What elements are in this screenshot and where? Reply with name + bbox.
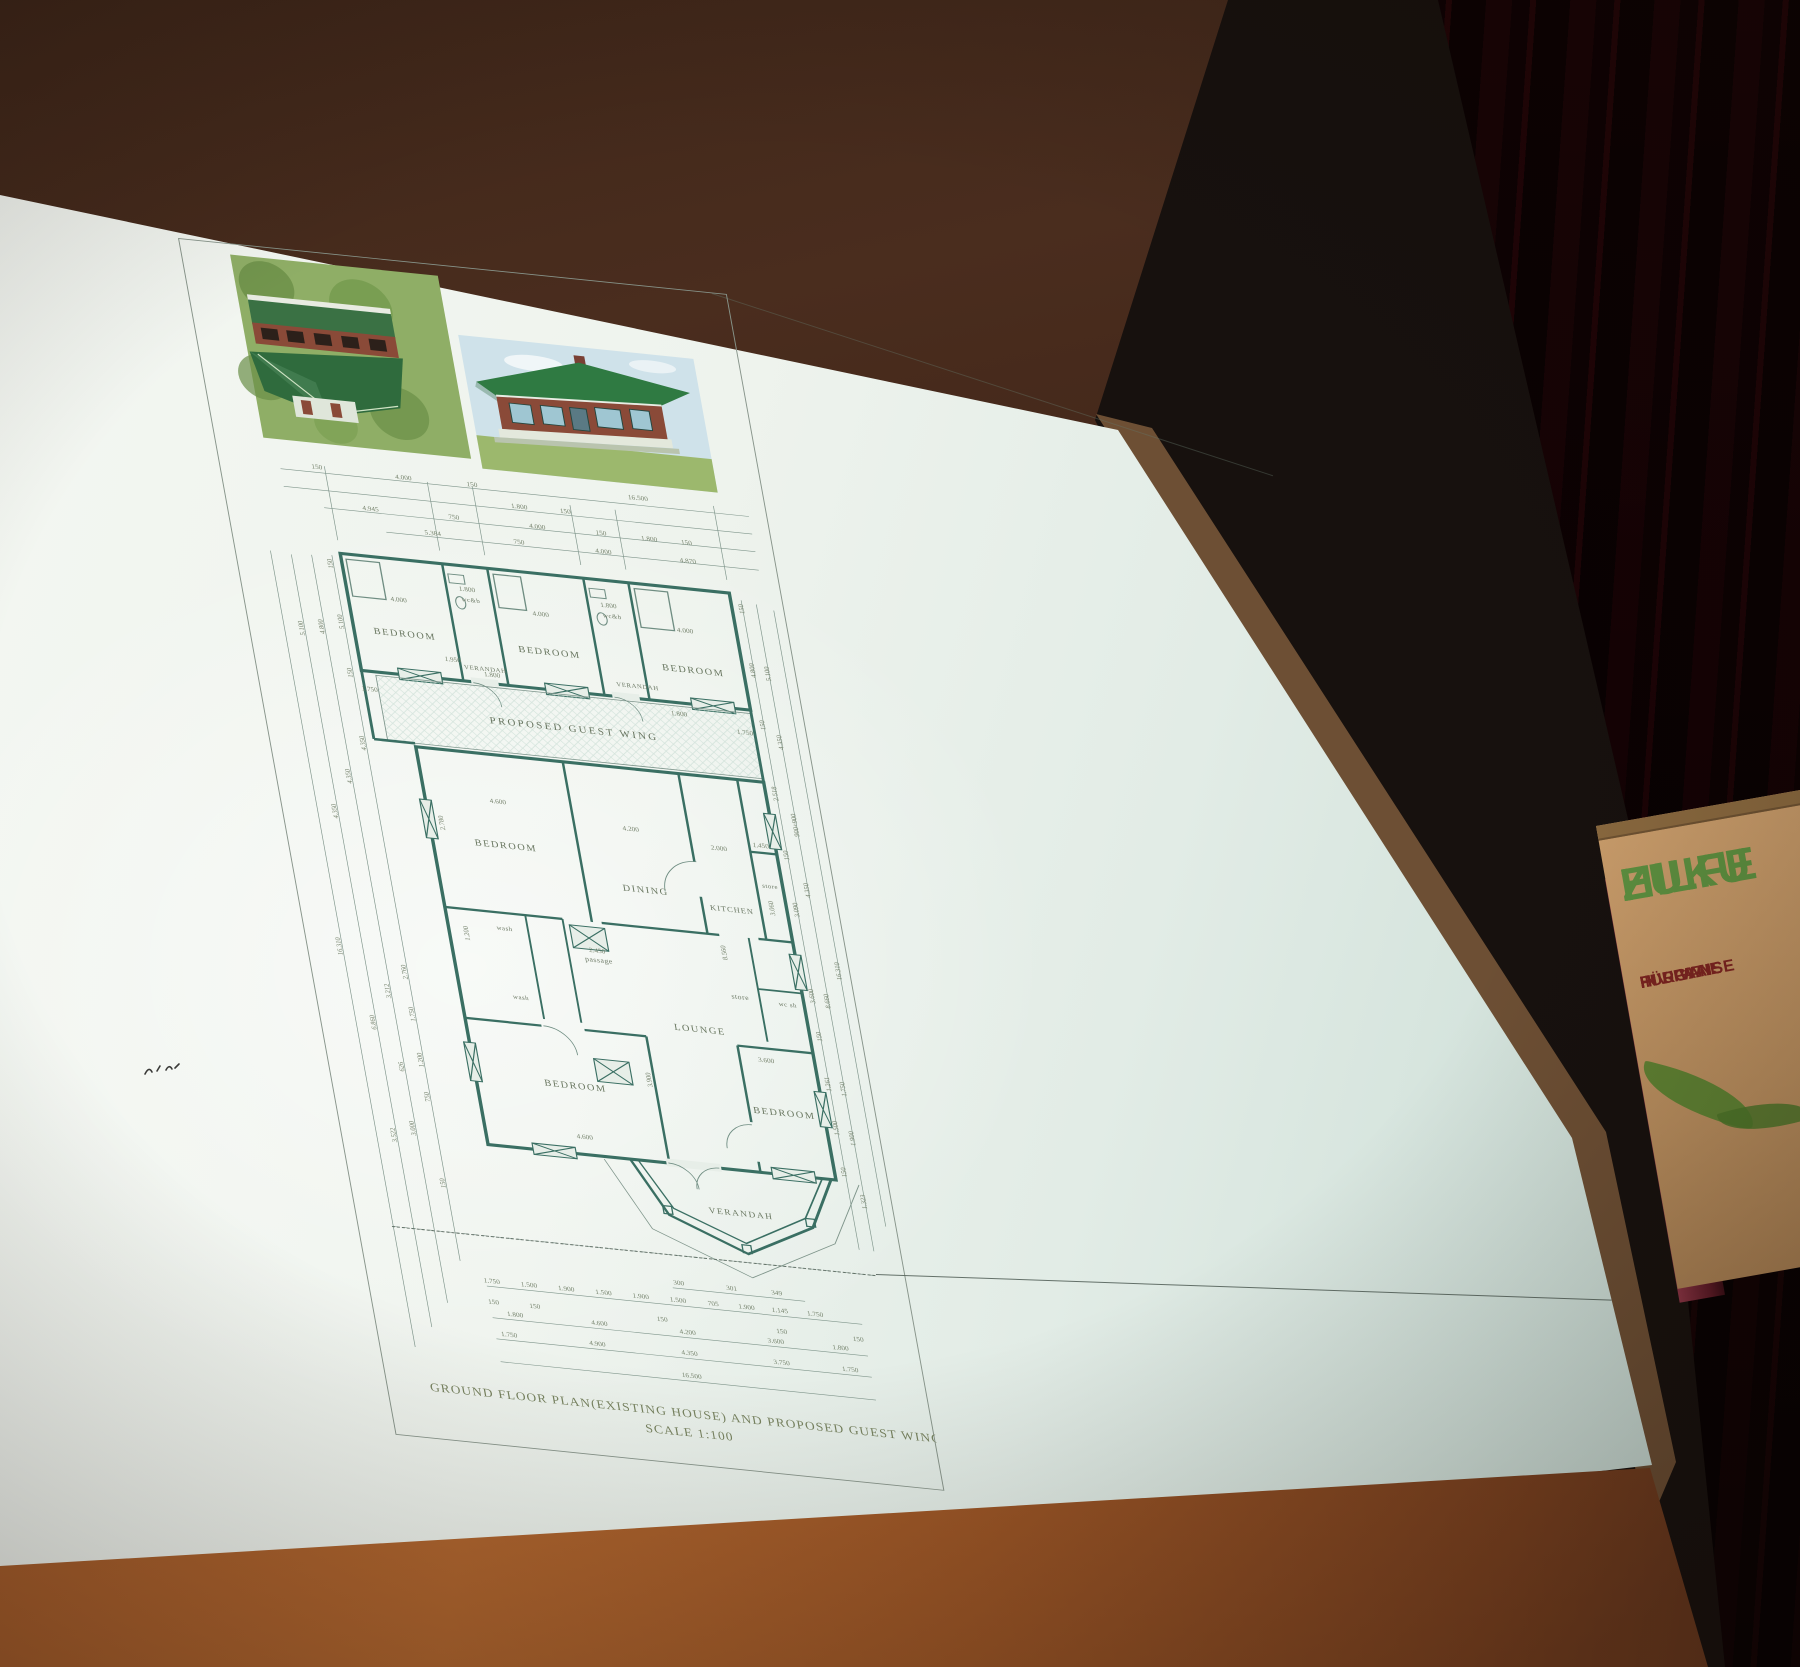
dim-label: 16.310	[832, 961, 844, 980]
dim-label: 6.860	[368, 1014, 379, 1030]
dim-label: 5.100	[762, 666, 773, 682]
dim-label: 5.100	[296, 620, 307, 636]
room-label: BEDROOM	[474, 838, 538, 855]
dim-label: 1.750	[483, 1277, 501, 1286]
dim-label: 150	[595, 529, 608, 538]
dim-label: 750	[422, 1091, 432, 1102]
dim-label: 1.750	[500, 1330, 518, 1339]
dim-label: 4.350	[357, 735, 368, 751]
dim-label: 150	[781, 850, 791, 861]
room-label: wc&b	[602, 613, 622, 621]
dim-label: 1.900	[738, 1303, 756, 1312]
dim-label: 1.750	[806, 1310, 824, 1319]
dim-label: 4.870	[679, 557, 697, 566]
room-label: wash	[512, 994, 529, 1002]
dim-label: 1.750	[361, 685, 379, 694]
dim-label: 3.600	[806, 988, 817, 1004]
dim-label: 1.800	[510, 502, 528, 511]
room-label: BEDROOM	[661, 663, 725, 680]
dim-label: 3.060	[766, 900, 777, 916]
dim-label: 3.750	[773, 1358, 791, 1367]
dim-label: 900+900	[789, 813, 802, 838]
dim-label: 150	[529, 1302, 542, 1311]
dim-label: 2.000	[710, 844, 728, 853]
dim-label: 3.600	[767, 1337, 785, 1346]
plan-scale: SCALE 1:100	[644, 1422, 735, 1444]
dim-label: 750	[448, 513, 461, 522]
banner-sub-3: IN UGAN	[1638, 960, 1714, 994]
dim-label: 150	[814, 1031, 824, 1042]
dim-label: 8.560	[719, 945, 730, 961]
dim-label: 705	[707, 1300, 720, 1309]
room-label: VERANDAH	[708, 1205, 774, 1221]
dim-label: 150	[776, 1327, 789, 1336]
dim-label: 4.350	[343, 768, 354, 784]
dim-label: 2.518	[770, 786, 781, 802]
room-label: DINING	[622, 883, 670, 898]
dim-label: 2.760	[399, 964, 410, 980]
dim-label: 150	[656, 1315, 669, 1324]
room-label: wc&b	[461, 597, 481, 605]
dim-label: 3.090	[791, 902, 802, 918]
rendering-perspective	[458, 335, 718, 493]
dim-label: 4.600	[591, 1319, 609, 1328]
dim-label: 4.600	[489, 797, 507, 806]
dim-label: 1.800	[832, 1343, 850, 1352]
dim-label: 1.800	[506, 1310, 524, 1319]
dim-label: 4.800	[316, 618, 327, 634]
dim-label: 1.500	[669, 1296, 687, 1305]
dim-label: 1.750	[407, 1006, 418, 1022]
dim-label: 4.000	[532, 610, 550, 619]
dim-label: 150	[311, 463, 324, 472]
dim-label: 301	[725, 1284, 738, 1293]
dim-label: 1.900	[632, 1292, 650, 1301]
dim-label: 16.310	[333, 936, 345, 955]
room-label: LOUNGE	[673, 1022, 726, 1038]
dim-label: 1.800	[458, 585, 476, 594]
dim-label: 16.500	[681, 1371, 703, 1381]
dim-label: 1.145	[771, 1306, 789, 1315]
room-label: store	[762, 883, 779, 891]
bottom-dim-labels: 3003013491.7501.5001.9001.5001.9001.5007…	[480, 1259, 875, 1398]
dim-label: 1.750	[838, 1081, 849, 1097]
dim-label: 1.261	[822, 1076, 833, 1092]
dim-label: 16.500	[627, 493, 649, 503]
dim-label: 150	[839, 1166, 849, 1177]
dim-label: 150	[736, 603, 746, 614]
dim-label: 4.200	[622, 824, 640, 833]
room-label: wash	[496, 925, 513, 933]
dim-label: 150	[325, 558, 335, 569]
room-label: VERANDAH	[616, 681, 660, 692]
dim-label: 150	[345, 667, 355, 678]
dim-label: 1.750	[841, 1365, 859, 1374]
dim-label: 1.200	[461, 925, 472, 941]
dim-label: 2.450	[588, 946, 606, 955]
dim-label: 4.600	[576, 1132, 594, 1141]
dim-label: 150	[680, 539, 693, 548]
dim-label: 4.000	[395, 473, 413, 482]
dim-label: 3.600	[757, 1056, 775, 1065]
dim-label: 2.780	[436, 815, 447, 831]
dim-label: 1.500	[595, 1288, 613, 1297]
dim-label: 4.350	[681, 1349, 699, 1358]
dim-label: 750	[513, 538, 526, 547]
auditorium-photo: 1504.00015016.5001.8001504.9457504.00015…	[0, 0, 1800, 1667]
dim-label: 150	[438, 1177, 448, 1188]
room-label: wc sh	[778, 1001, 798, 1009]
dim-label: 4.350	[329, 803, 340, 819]
dim-label: 150	[758, 719, 768, 730]
dim-label: 4.350	[775, 734, 786, 750]
dim-label: 4.000	[528, 522, 546, 531]
dim-label: 1.323	[858, 1194, 869, 1210]
dim-label: 4.900	[589, 1339, 607, 1348]
existing-house	[410, 746, 846, 1204]
dim-label: 1.900	[557, 1284, 575, 1293]
dim-label: 5.100	[335, 613, 346, 629]
dim-label: 8.660	[822, 993, 833, 1009]
dim-label: 4.000	[390, 595, 408, 604]
dim-label: 150	[559, 507, 572, 516]
dim-label: 150	[466, 480, 479, 489]
dim-label: 1.900	[847, 1130, 858, 1146]
dim-label: 1.500	[830, 1120, 841, 1136]
dim-label: 1.450	[752, 841, 770, 850]
dim-label: 1.800	[640, 534, 658, 543]
inner-dim-labels: 4.0001.8004.0001.8004.0001.9501.8001.750…	[341, 573, 833, 1166]
room-label: KITCHEN	[709, 903, 754, 916]
dim-label: 150	[852, 1335, 865, 1344]
dim-label: 300	[673, 1279, 686, 1288]
room-label: BEDROOM	[373, 626, 437, 643]
dim-label: 349	[771, 1289, 784, 1298]
rendering-aerial	[216, 253, 471, 459]
handwritten-mark	[142, 1058, 182, 1082]
room-label: BEDROOM	[752, 1105, 816, 1122]
dim-label: 4.000	[595, 547, 613, 556]
dim-label: 5.384	[424, 529, 442, 538]
dim-label: 3.000	[407, 1120, 418, 1136]
dim-label: 4.200	[679, 1328, 697, 1337]
room-label: store	[731, 992, 750, 1002]
dim-label: 4.800	[747, 662, 758, 678]
dim-label: 150	[488, 1298, 501, 1307]
room-label: BEDROOM	[518, 644, 582, 661]
dim-label: 1.950	[444, 655, 462, 664]
room-label: passage	[584, 954, 614, 965]
dim-label: 3.212	[382, 983, 393, 999]
dim-label: 626	[396, 1061, 406, 1072]
dim-label: 1.200	[415, 1052, 426, 1068]
dim-label: 4.000	[676, 626, 694, 635]
dim-label: 4.350	[802, 882, 813, 898]
dim-label: 3.522	[388, 1127, 399, 1143]
dim-label: 1.800	[600, 601, 618, 610]
banner-title-line2: ZUKU	[1617, 840, 1755, 908]
dim-label: 1.500	[520, 1280, 538, 1289]
dim-label: 4.945	[362, 504, 380, 513]
